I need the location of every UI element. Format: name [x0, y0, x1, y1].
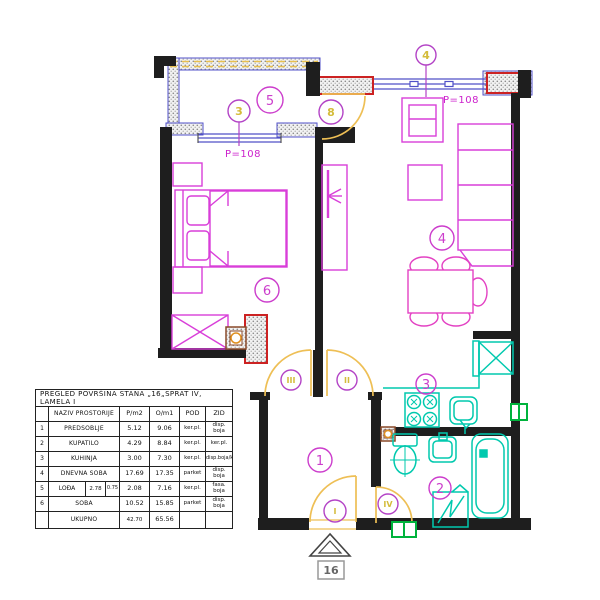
armchair: [402, 98, 443, 142]
row-p: 3.00: [120, 452, 150, 467]
loggia-subcells: LOĐA 2.78 0.75: [49, 482, 119, 496]
row-pod: ker.pl.: [180, 422, 206, 437]
door-mark-IV-label: IV: [383, 500, 393, 509]
window-mark-4-label: 4: [422, 49, 430, 62]
row-num: 6: [36, 497, 49, 512]
table-row: 6 SOBA 10.52 15.85 parket disp. boja: [36, 497, 233, 512]
row-o: 17.35: [150, 467, 180, 482]
row-naziv: PREDSOBLJE: [49, 422, 120, 437]
side-table: [408, 165, 442, 200]
row-p: 10.52: [120, 497, 150, 512]
row-o: 15.85: [150, 497, 180, 512]
row-naziv: SOBA: [49, 497, 120, 512]
bedroom-shaft-box: [226, 327, 246, 349]
row-pod: ker.pl.: [180, 482, 206, 497]
dining-set: [408, 257, 487, 326]
loggia-coef: 0.75: [106, 482, 119, 496]
total-label: UKUPNO: [49, 512, 120, 529]
col-header-p: P/m2: [120, 407, 150, 422]
row-num: 5: [36, 482, 49, 497]
tv-unit: [322, 165, 347, 270]
table-row: 5 LOĐA 2.78 0.75 2.08 7.16 ker.pl. fasa.…: [36, 482, 233, 497]
row-zid: disp. boja: [206, 467, 233, 482]
area-summary-table: PREGLED POVRŠINA STANA „16„SPRAT IV, LAM…: [35, 389, 233, 529]
bathroom-door: [376, 487, 412, 523]
row-pod: ker.pl.: [180, 452, 206, 467]
row-pod: ker.pl.: [180, 437, 206, 452]
row-p: 4.29: [120, 437, 150, 452]
nightstand-top: [173, 163, 202, 186]
room-number-living: 4: [438, 232, 446, 247]
doors: [265, 94, 412, 529]
total-o: 65.56: [150, 512, 180, 529]
room-number-loggia: 5: [266, 94, 274, 109]
bathtub: [472, 434, 508, 518]
room-number-bathroom: 2: [436, 482, 444, 497]
sofa: [458, 124, 513, 266]
row-naziv: KUPATILO: [49, 437, 120, 452]
parapet-label-top: P=108: [443, 95, 479, 106]
row-naziv: KUHINJA: [49, 452, 120, 467]
col-header-num: [36, 407, 49, 422]
row-zid: ker.pl.: [206, 437, 233, 452]
row-zid: disp. boja: [206, 497, 233, 512]
row-num: 1: [36, 422, 49, 437]
row-p: 2.08: [120, 482, 150, 497]
row-o: 7.16: [150, 482, 180, 497]
door-mark-8-label: 8: [327, 106, 335, 119]
radiator-left: [313, 77, 373, 94]
row-num: 2: [36, 437, 49, 452]
row-o: 8.84: [150, 437, 180, 452]
stove: [405, 393, 439, 427]
total-p: 42.70: [120, 512, 150, 529]
row-o: 7.30: [150, 452, 180, 467]
row-zid: disp. boja: [206, 422, 233, 437]
row-zid: disp.boja/ker.pl.: [206, 452, 233, 467]
table-title: PREGLED POVRŠINA STANA „16„SPRAT IV, LAM…: [36, 390, 233, 407]
total-zid: [206, 512, 233, 529]
door-mark-III-label: III: [287, 376, 296, 385]
row-num: 4: [36, 467, 49, 482]
row-pod: parket: [180, 467, 206, 482]
row-zid: fasa. boja: [206, 482, 233, 497]
bedroom-furniture: [172, 163, 287, 349]
kitchen-fixtures: [383, 341, 513, 434]
row-num: 3: [36, 452, 49, 467]
col-header-zid: ZID: [206, 407, 233, 422]
total-num: [36, 512, 49, 529]
window-mark-3-label: 3: [235, 105, 243, 118]
double-bed: [175, 190, 287, 267]
col-header-naziv: NAZIV PROSTORIJE: [49, 407, 120, 422]
room-number-bedroom: 6: [263, 284, 271, 299]
table-row: 1 PREDSOBLJE 5.12 9.06 ker.pl. disp. boj…: [36, 422, 233, 437]
door-mark-I-label: I: [334, 507, 337, 516]
parapet-label-left: P=108: [225, 149, 261, 160]
row-pod: parket: [180, 497, 206, 512]
apartment-number: 16: [323, 564, 339, 577]
wardrobe: [172, 315, 228, 349]
washbasin: [429, 433, 456, 462]
table-total-row: UKUPNO 42.70 65.56: [36, 512, 233, 529]
row-p: 5.12: [120, 422, 150, 437]
fridge: [473, 341, 513, 376]
living-room-window: [373, 79, 488, 89]
room-number-hall: 1: [316, 454, 324, 469]
row-naziv: LOĐA: [49, 482, 86, 496]
loggia-width: 2.78: [86, 482, 106, 496]
kitchen-counter: [383, 341, 479, 388]
total-pod: [180, 512, 206, 529]
table-row: 3 KUHINJA 3.00 7.30 ker.pl. disp.boja/ke…: [36, 452, 233, 467]
row-naziv: DNEVNA SOBA: [49, 467, 120, 482]
row-o: 9.06: [150, 422, 180, 437]
door-mark-II-label: II: [344, 376, 350, 385]
entrance-arrow: [310, 534, 350, 556]
col-header-pod: POD: [180, 407, 206, 422]
row-p: 17.69: [120, 467, 150, 482]
table-row: 2 KUPATILO 4.29 8.84 ker.pl. ker.pl.: [36, 437, 233, 452]
floor-plan-page: 1 2 3 4 5 6 3 4 8 I II III IV P=108 P=10…: [0, 0, 600, 600]
col-header-o: O/m1: [150, 407, 180, 422]
room-number-kitchen: 3: [422, 378, 430, 393]
bedroom-shaft: [245, 315, 267, 363]
bathroom-fixtures: [390, 433, 508, 527]
table-row: 4 DNEVNA SOBA 17.69 17.35 parket disp. b…: [36, 467, 233, 482]
nightstand-bottom: [173, 267, 202, 293]
